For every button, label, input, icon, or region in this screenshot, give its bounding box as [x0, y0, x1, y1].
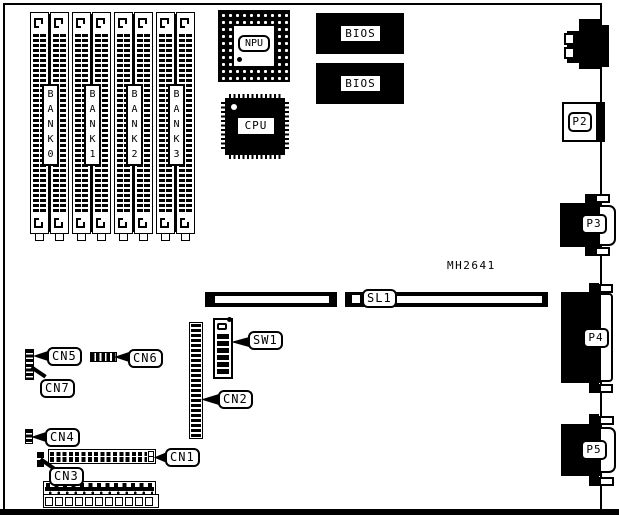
cpu-pin1-dot: [231, 104, 237, 110]
expansion-slot-opening: [215, 296, 329, 303]
pin-header-cn5-cn7: [25, 349, 34, 380]
cn5-leader-line: [33, 351, 48, 361]
sw1-switch-5: [217, 362, 229, 367]
slot-sl1-key: [352, 295, 360, 303]
callout-cn7: CN7: [40, 379, 75, 398]
callout-cn5: CN5: [47, 347, 82, 366]
pin-header-cn4: [25, 429, 33, 444]
bank3-label: B A N K 3: [168, 84, 185, 166]
cpu-label: CPU: [238, 118, 274, 134]
callout-cn6: CN6: [128, 349, 163, 368]
sw1-switch-1: [217, 334, 229, 339]
port-p3-screw-top: [595, 194, 610, 203]
bios-bottom-label: BIOS: [341, 76, 380, 91]
keyboard-connector-pin-lower: [564, 47, 575, 59]
callout-cn2: CN2: [218, 390, 253, 409]
board-edge-bottom: [0, 509, 619, 515]
port-p5-screw-bottom: [599, 477, 614, 486]
port-p5-label: P5: [581, 440, 607, 460]
sw1-switch-2: [217, 341, 229, 346]
bank0-label: B A N K 0: [42, 84, 59, 166]
sw1-pin1-dot: [227, 317, 232, 322]
sw1-switch-4: [217, 355, 229, 360]
bios-top-label: BIOS: [341, 26, 380, 41]
port-p3-screw-top-post: [585, 194, 595, 203]
bios-chip-bottom: BIOS: [316, 63, 404, 104]
port-p5-screw-top: [599, 416, 614, 425]
callout-cn4: CN4: [45, 428, 80, 447]
keyboard-din-connector-bulge: [600, 25, 609, 67]
sw1-position-marker: [217, 323, 227, 330]
port-p4-screw-bottom: [599, 384, 613, 393]
bank2-label: B A N K 2: [126, 84, 143, 166]
slot-sl1-label: SL1: [362, 289, 397, 308]
port-p4-label: P4: [583, 328, 609, 348]
cn4-leader-line: [31, 432, 46, 442]
sw1-leader-line: [231, 337, 249, 347]
cn2-leader-line: [201, 394, 219, 405]
pin-header-cn6: [90, 352, 117, 362]
callout-cn3: CN3: [49, 467, 84, 486]
bottom-connector-lower: [43, 494, 159, 508]
slot-sl1-opening: [394, 296, 542, 303]
npu-pin1-dot: [237, 57, 242, 62]
port-p3-label: P3: [581, 214, 607, 234]
npu-socket: NPU: [218, 10, 290, 82]
port-p5-screw-bottom-post: [589, 476, 599, 486]
callout-sw1: SW1: [248, 331, 283, 350]
port-p4-screw-top: [599, 284, 613, 293]
board-edge-left: [3, 3, 5, 510]
board-edge-top: [3, 3, 602, 5]
cpu-pins-right: [285, 102, 289, 151]
bios-chip-top: BIOS: [316, 13, 404, 54]
connector-cn2: [189, 322, 203, 439]
sw1-switch-3: [217, 348, 229, 353]
motherboard-diagram: B A N K 0 B A N K 1 B A N K 2 B A N K 3 …: [0, 0, 619, 520]
sw1-switch-6: [217, 369, 229, 374]
cpu-pins-bottom: [229, 155, 281, 159]
port-p4-screw-bottom-post: [589, 383, 599, 393]
npu-inner-area: NPU: [234, 26, 274, 66]
keyboard-din-connector: [579, 19, 602, 69]
port-p3-screw-bottom: [595, 247, 610, 256]
callout-cn1: CN1: [165, 448, 200, 467]
cpu-chip: CPU: [225, 98, 285, 155]
connector-cn1: [48, 449, 156, 464]
dip-switch-sw1: [213, 318, 233, 379]
port-p3-screw-bottom-post: [585, 247, 595, 256]
keyboard-connector-pin-upper: [564, 33, 575, 45]
port-p5-screw-top-post: [589, 414, 599, 424]
part-number: MH2641: [447, 259, 496, 272]
bank1-label: B A N K 1: [84, 84, 101, 166]
npu-label: NPU: [238, 35, 270, 52]
port-p2-label: P2: [568, 112, 592, 132]
